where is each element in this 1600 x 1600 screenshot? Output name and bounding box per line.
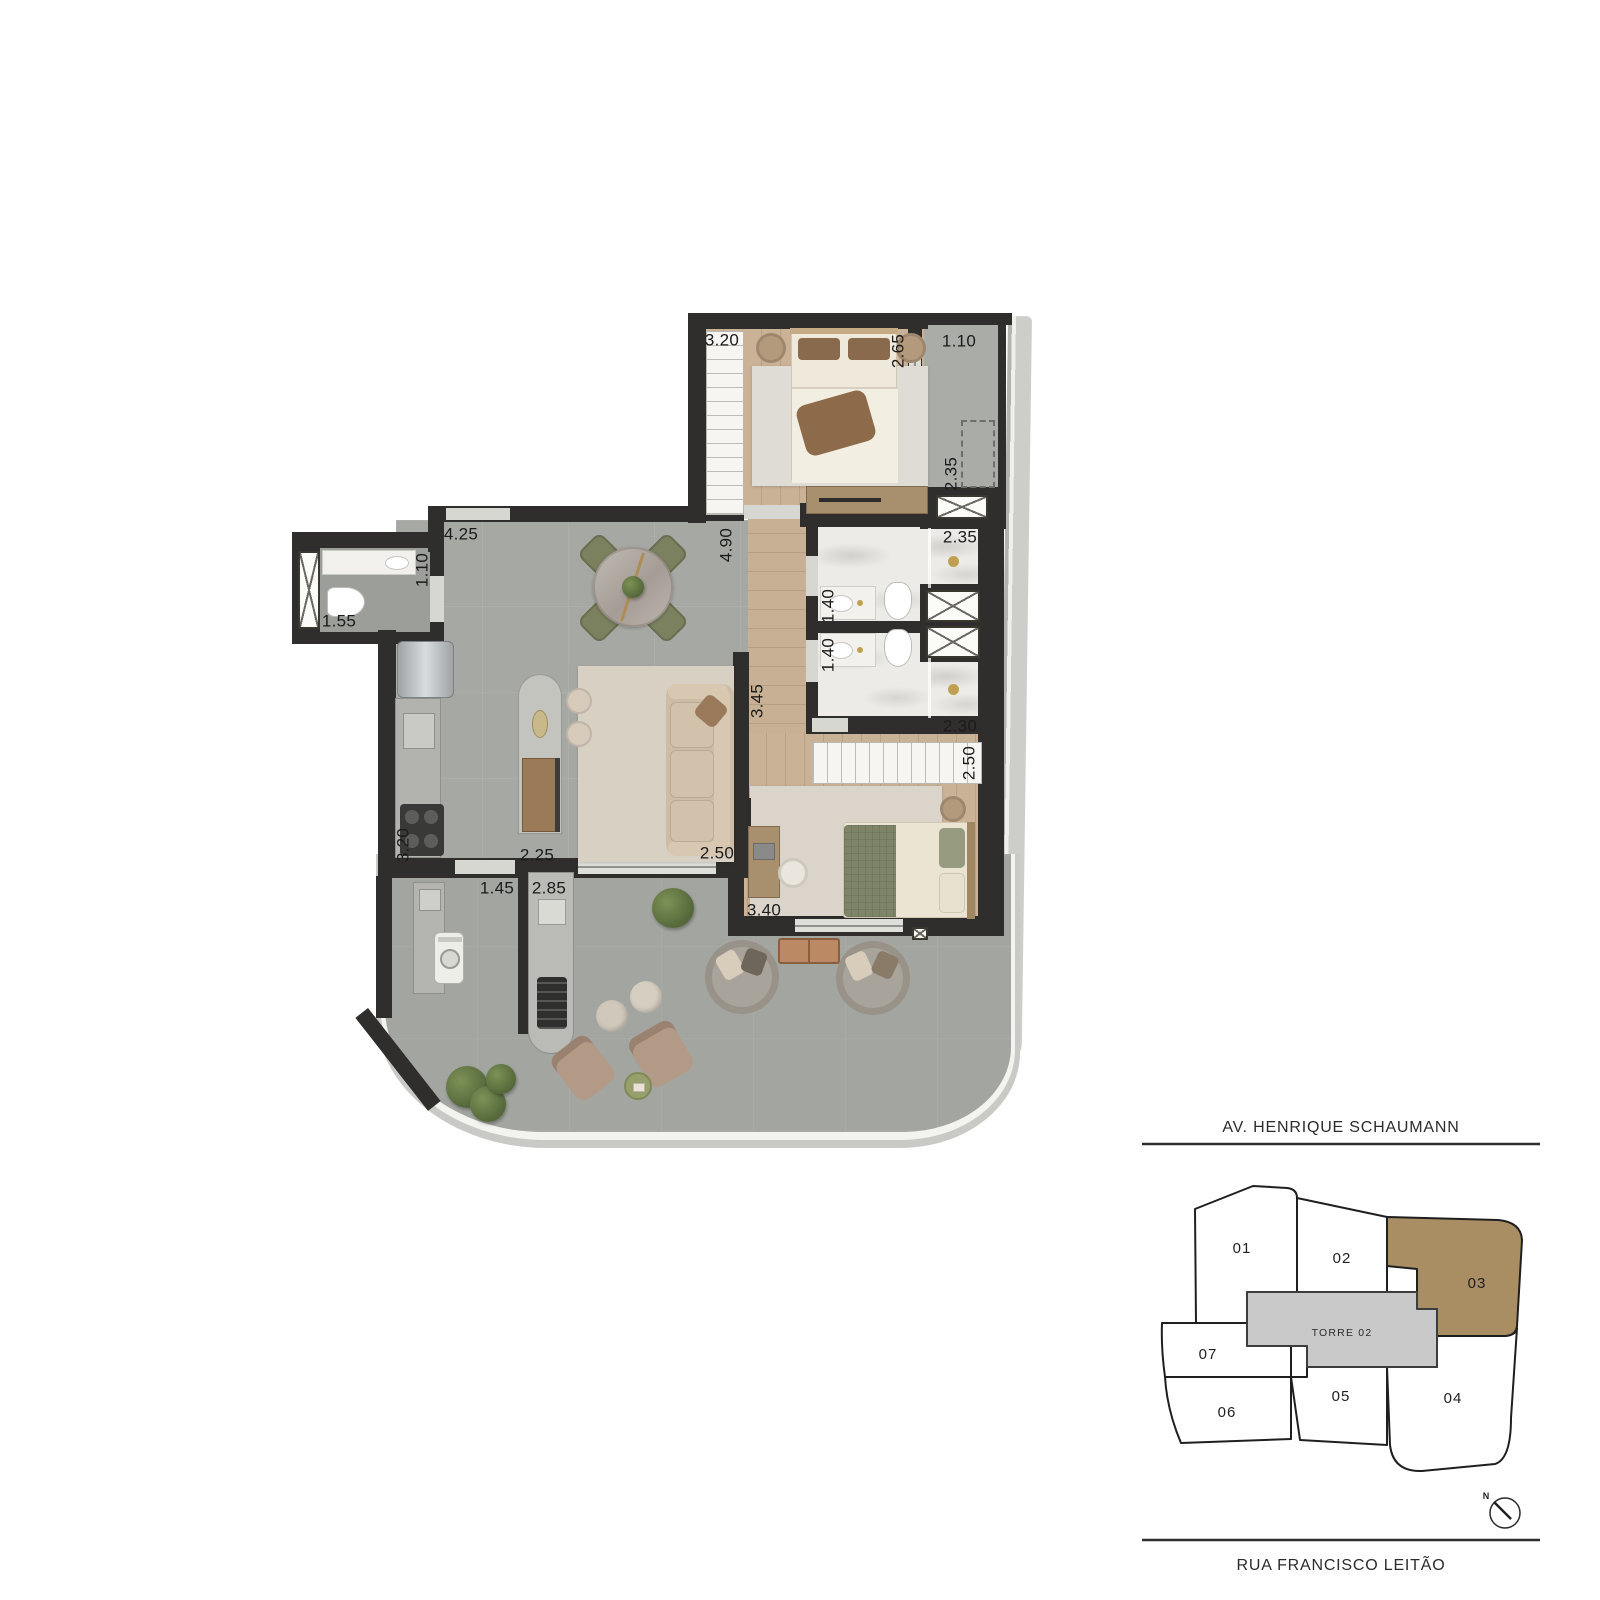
- shaft-balcony: [936, 495, 988, 519]
- suite1-pillow-left: [798, 338, 840, 360]
- dining-centerpiece-plant: [622, 576, 644, 598]
- suite1-nightstand-left: [756, 333, 786, 363]
- dimension-label: 3.45: [749, 684, 766, 718]
- dimension-label: 1.40: [820, 638, 837, 672]
- balcony-ac-reserve: [961, 420, 995, 488]
- north-label: N: [1483, 1491, 1490, 1501]
- terrace-plant-large-c: [486, 1064, 516, 1094]
- bedroom2-desk: [748, 826, 780, 898]
- wall-entry-corner: [428, 506, 444, 552]
- bedroom2-laptop: [753, 843, 775, 860]
- bedroom2-door-gap: [812, 718, 848, 732]
- bedroom2-desk-chair: [778, 858, 808, 888]
- dimension-label: 4.90: [718, 528, 735, 562]
- bedroom2-window: [795, 919, 903, 932]
- lavabo-sink: [385, 556, 409, 570]
- lounge-chair-1: [705, 940, 779, 1014]
- floorplan-canvas: 3.20 2.65 1.10 2.35 2.35 1.40 1.40 2.30 …: [0, 0, 1600, 1600]
- suite1-tv: [819, 498, 881, 502]
- bedroom2-nightstand: [940, 796, 966, 822]
- suite1-dresser: [806, 486, 928, 514]
- dimension-label: 2.65: [890, 334, 907, 368]
- shaft-bath-a: [926, 590, 980, 622]
- shaft-terrace-small: [912, 927, 928, 940]
- dining-table: [593, 547, 673, 627]
- wall-balcony-right: [998, 313, 1006, 493]
- bedroom2-blanket-green: [844, 825, 896, 917]
- dimension-label: 2.85: [532, 880, 566, 897]
- dimension-label: 1.10: [414, 553, 431, 587]
- terrace-plant-mid: [652, 888, 694, 928]
- lounge2-cushion-a: [844, 950, 875, 983]
- bedroom2-pillow-cream: [939, 873, 965, 913]
- keyplan-unit-label-07: 07: [1199, 1346, 1218, 1363]
- stove-burner-2: [424, 810, 438, 824]
- suite1-wardrobe: [706, 331, 744, 515]
- dimension-label: 3.40: [747, 902, 781, 919]
- dimension-label: 1.10: [942, 333, 976, 350]
- washing-machine-panel: [438, 937, 462, 942]
- keyplan-map: AV. HENRIQUE SCHAUMANN 01 02 03 04 05 06…: [1120, 1090, 1560, 1600]
- terrace-bench-divider: [808, 940, 810, 962]
- bathroom1-faucet: [857, 600, 863, 606]
- island-stool-1: [566, 688, 592, 714]
- dimension-label: 1.55: [322, 613, 356, 630]
- shower2-glass: [928, 658, 931, 718]
- bathroom2-door-gap: [806, 640, 818, 682]
- kitchen-sink: [403, 713, 435, 749]
- keyplan-unit-label-02: 02: [1333, 1250, 1352, 1267]
- keyplan-unit-label-04: 04: [1444, 1390, 1463, 1407]
- dimension-label: 3.20: [705, 332, 739, 349]
- dimension-label: 1.45: [480, 880, 514, 897]
- north-compass: N: [1483, 1491, 1520, 1528]
- dimension-label: 2.35: [943, 457, 960, 491]
- washing-machine-door: [440, 949, 460, 969]
- service-sink: [419, 889, 441, 911]
- island-stool-2: [566, 721, 592, 747]
- suite1-bed: [791, 330, 897, 482]
- bathroom1-door-gap: [806, 556, 818, 596]
- shaft-lavabo: [298, 551, 320, 629]
- shower1-glass: [928, 528, 931, 588]
- grill-island: [528, 872, 574, 1054]
- sofa-cushion-2: [670, 750, 714, 798]
- suite1-bed-headboard: [790, 328, 898, 334]
- dimension-label: 4.25: [444, 526, 478, 543]
- island-fruit-bowl: [532, 710, 548, 738]
- living-window: [578, 860, 716, 874]
- suite1-door-gap: [744, 505, 800, 519]
- bathroom2-toilet: [884, 629, 912, 667]
- bedroom2-bed: [843, 822, 973, 918]
- bathroom2-faucet: [857, 647, 863, 653]
- dimension-label: 2.35: [943, 529, 977, 546]
- dimension-label: 2.50: [961, 746, 978, 780]
- stove-burner-4: [424, 834, 438, 848]
- sofa: [666, 684, 734, 856]
- dimension-label: 2.25: [520, 847, 554, 864]
- sofa-cushion-3: [670, 800, 714, 842]
- wall-suite-left: [688, 313, 706, 523]
- wall-suite-top: [688, 313, 928, 329]
- keyplan-unit-02: [1297, 1198, 1387, 1292]
- keyplan-unit-label-01: 01: [1233, 1240, 1252, 1257]
- lounge-chair-2: [836, 941, 910, 1015]
- lavabo-counter: [322, 550, 416, 575]
- terrace-door-gap: [455, 860, 515, 874]
- street-name-bottom: RUA FRANCISCO LEITÃO: [1237, 1554, 1446, 1574]
- keyplan-tower-label: TORRE 02: [1312, 1327, 1373, 1339]
- lavabo-door-gap: [430, 576, 444, 622]
- terrace-side-table: [624, 1072, 652, 1100]
- keyplan-unit-label-06: 06: [1218, 1404, 1237, 1421]
- terrace-pouf-2: [630, 981, 662, 1013]
- street-name-top: AV. HENRIQUE SCHAUMANN: [1222, 1119, 1459, 1136]
- side-table-tray: [633, 1083, 645, 1092]
- kitchen-island: [518, 674, 562, 834]
- island-counter-edge: [555, 758, 560, 832]
- bedroom2-headboard: [967, 822, 975, 919]
- bedroom2-pillow-green: [939, 828, 965, 868]
- lounge2-cushion-b: [870, 949, 900, 980]
- shower2-head: [948, 684, 959, 695]
- kitchen-fridge: [397, 641, 454, 698]
- keyplan-unit-label-03: 03: [1468, 1275, 1487, 1292]
- lounge1-cushion-b: [740, 947, 769, 977]
- dimension-label: 1.40: [820, 589, 837, 623]
- suite1-pillow-right: [848, 338, 890, 360]
- bedroom2-wardrobe: [812, 742, 982, 784]
- grill-unit: [537, 977, 567, 1029]
- washing-machine: [434, 932, 464, 984]
- sofa-arm-top: [668, 684, 728, 699]
- entry-door-gap: [446, 508, 510, 520]
- shaft-bath-b: [926, 626, 980, 658]
- terrace-bench: [778, 938, 840, 964]
- shower1-head: [948, 556, 959, 567]
- bathroom1-toilet: [884, 582, 912, 620]
- keyplan-unit-label-05: 05: [1332, 1388, 1351, 1405]
- terrace-pouf-1: [596, 1000, 628, 1032]
- stove-burner-1: [405, 810, 419, 824]
- island-wood-base: [522, 758, 558, 832]
- keyplan-unit-05: [1291, 1367, 1387, 1445]
- dimension-label: 3.20: [395, 828, 412, 862]
- dimension-label: 2.50: [700, 845, 734, 862]
- dimension-label: 2.30: [943, 718, 977, 735]
- wall-hall-bath: [806, 518, 818, 720]
- grill-sink: [538, 899, 566, 925]
- wall-service-left: [376, 876, 392, 1018]
